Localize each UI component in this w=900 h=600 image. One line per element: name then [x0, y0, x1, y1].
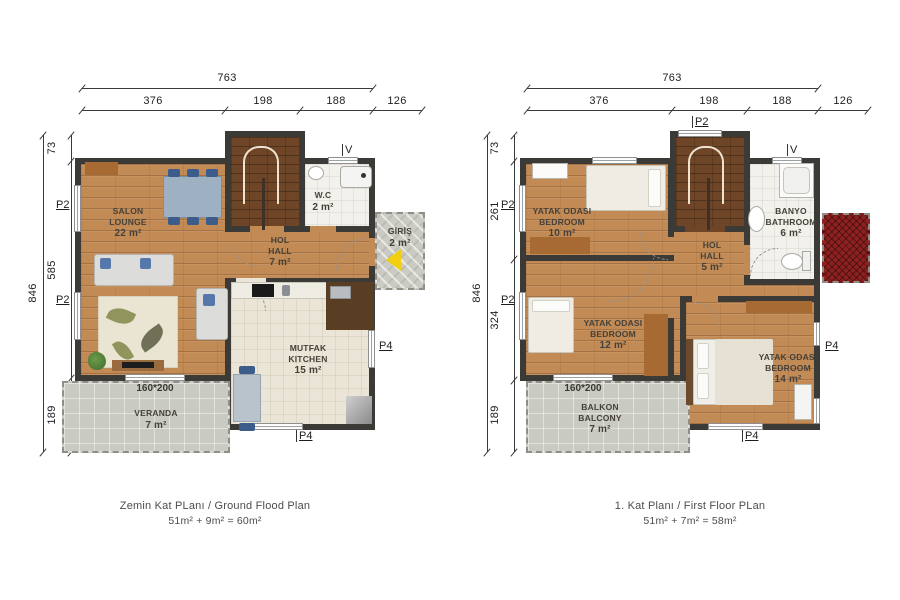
dresser [794, 384, 812, 420]
room-area: 6 m² [756, 228, 826, 241]
room-area: 22 m² [88, 228, 168, 241]
ground-floor-caption: Zemin Kat PLanı / Ground Flood Plan 51m²… [90, 500, 340, 527]
marker-p4: P4 [825, 340, 838, 352]
caption-area-formula: 51m² + 9m² = 60m² [90, 515, 340, 527]
toilet-tank [802, 251, 811, 271]
room-name-en: BEDROOM [750, 363, 826, 374]
rug [98, 296, 178, 368]
sofa-pillow [100, 258, 111, 269]
dim-tick [483, 448, 490, 456]
caption-title: 1. Kat Planı / First Floor PLan [565, 500, 815, 512]
wc-label: W.C 2 m² [300, 190, 346, 214]
dim-segment: 188 [747, 95, 817, 107]
dim-total-width: 763 [647, 72, 697, 84]
dim-tick [510, 448, 517, 456]
dim-total-height: 846 [27, 273, 39, 313]
bedroom3-label: YATAK ODASI BEDROOM 14 m² [750, 352, 826, 387]
window [74, 185, 81, 232]
dim-segment: 376 [564, 95, 634, 107]
room-name-tr: YATAK ODASI [575, 318, 651, 329]
window-size-label: 160*200 [553, 383, 613, 394]
door-opening [310, 226, 336, 232]
dining-chair [168, 217, 180, 225]
window-160x200 [125, 374, 185, 381]
room-area: 2 m² [300, 202, 346, 215]
room-name-tr: GİRİŞ [377, 226, 423, 237]
wc-sink [308, 166, 324, 180]
salon-label: SALON LOUNGE 22 m² [88, 206, 168, 241]
window-160x200 [553, 374, 613, 381]
window [519, 292, 526, 340]
room-name-en: BEDROOM [575, 329, 651, 340]
dim-line-total-v [43, 135, 44, 452]
dining-chair [187, 169, 199, 177]
dim-line-total-v [487, 135, 488, 452]
window [813, 398, 820, 424]
marker-p4: P4 [379, 340, 392, 352]
room-name-en: BALCONY [562, 413, 638, 424]
kitchen-table [233, 374, 261, 422]
room-area: 5 m² [680, 262, 744, 275]
room-name-tr: HOL [680, 240, 744, 251]
room-name-en: BEDROOM [524, 217, 600, 228]
hall-label: HOL HALL 5 m² [680, 240, 744, 275]
caption-title: Zemin Kat PLanı / Ground Flood Plan [90, 500, 340, 512]
kitchen-chair [239, 423, 255, 431]
room-area: 7 m² [245, 257, 315, 270]
kitchen-window [368, 330, 375, 368]
wc-window [328, 157, 358, 164]
dining-chair [206, 217, 218, 225]
window [592, 157, 637, 164]
doormat [346, 396, 372, 424]
dim-segment: 73 [46, 134, 58, 162]
window [813, 322, 820, 346]
giris-label: GİRİŞ 2 m² [377, 226, 423, 250]
pillow [697, 343, 709, 369]
room-name-tr: SALON [88, 206, 168, 217]
entry-door-opening [369, 238, 375, 266]
room-area: 12 m² [575, 340, 651, 353]
entrance-arrow-icon [386, 249, 401, 271]
dim-line-total [527, 88, 818, 89]
dim-segment: 126 [808, 95, 878, 107]
door-opening [744, 245, 750, 275]
toilet [781, 253, 803, 270]
room-name-en: HALL [245, 246, 315, 257]
dim-segment: 73 [489, 134, 501, 162]
room-area: 7 m² [562, 424, 638, 437]
door-opening [250, 226, 284, 232]
desk [532, 163, 568, 179]
plant [88, 352, 106, 370]
balcony-label: BALKON BALCONY 7 m² [562, 402, 638, 437]
dim-segment: 126 [362, 95, 432, 107]
pillow [648, 169, 661, 207]
wardrobe [746, 301, 812, 313]
marker-p2: P2 [501, 294, 514, 306]
marker-p2: P2 [501, 199, 514, 211]
room-area: 15 m² [270, 365, 346, 378]
kitchen-counter [231, 282, 327, 299]
floorplan-canvas: 763 376 198 188 126 846 73 585 189 [0, 0, 900, 600]
dim-total-width: 763 [202, 72, 252, 84]
room-name-tr: BALKON [562, 402, 638, 413]
dim-line-total [82, 88, 373, 89]
room-name-en: LOUNGE [88, 217, 168, 228]
caption-area-formula: 51m² + 7m² = 58m² [565, 515, 815, 527]
room-area: 7 m² [116, 420, 196, 433]
marker-p2: P2 [56, 294, 69, 306]
first-floor-caption: 1. Kat Planı / First Floor PLan 51m² + 7… [565, 500, 815, 527]
marker-p2: P2 [56, 199, 69, 211]
dining-chair [206, 169, 218, 177]
dim-total-height: 846 [471, 273, 483, 313]
bathtub [340, 166, 372, 188]
bathtub-drain [361, 173, 366, 178]
shower-tray [783, 167, 810, 194]
kitchen-label: MUTFAK KITCHEN 15 m² [270, 343, 346, 378]
dim-segment: 376 [118, 95, 188, 107]
marker-p2: P2 [692, 116, 708, 128]
sofa-pillow [140, 258, 151, 269]
marker-v: V [787, 144, 797, 156]
pillow [532, 300, 570, 312]
bathroom-label: BANYO BATHROOM 6 m² [756, 206, 826, 241]
room-name-en: HALL [680, 251, 744, 262]
dim-tick [39, 448, 46, 456]
room-name-tr: YATAK ODASI [524, 206, 600, 217]
hall-label: HOL HALL 7 m² [245, 235, 315, 270]
veranda-label: VERANDA 7 m² [116, 408, 196, 432]
dim-segment: 188 [301, 95, 371, 107]
room-name-en: KITCHEN [270, 354, 346, 365]
bedroom1-label: YATAK ODASI BEDROOM 10 m² [524, 206, 600, 241]
stove [252, 284, 274, 297]
inner-wall [668, 318, 674, 381]
room-name-tr: VERANDA [116, 408, 196, 419]
bed-headboard [686, 339, 693, 405]
stairs-direction-icon [243, 146, 279, 204]
room-name-tr: W.C [300, 190, 346, 201]
kitchen-door [248, 423, 303, 430]
window [708, 423, 763, 430]
kitchen-sink [330, 286, 351, 299]
marker-p4: P4 [742, 430, 758, 442]
room-area: 10 m² [524, 228, 600, 241]
dim-segment: 189 [489, 399, 501, 431]
dining-chair [187, 217, 199, 225]
dim-segment: 261 [489, 195, 501, 227]
room-name-tr: YATAK ODASI [750, 352, 826, 363]
kitchen-chair [239, 366, 255, 374]
room-name-tr: BANYO [756, 206, 826, 217]
bedroom2-label: YATAK ODASI BEDROOM 12 m² [575, 318, 651, 353]
stair-opening [685, 226, 725, 232]
marker-v: V [342, 144, 352, 156]
stairs-direction-icon [688, 146, 724, 204]
stair-window [678, 130, 722, 137]
dim-segment: 198 [228, 95, 298, 107]
window-size-label: 160*200 [125, 383, 185, 394]
entrance-roof [822, 213, 870, 283]
dim-segment: 189 [46, 399, 58, 431]
tv [122, 362, 154, 368]
dining-chair [168, 169, 180, 177]
dining-table [163, 176, 222, 218]
window [74, 292, 81, 340]
room-name-tr: HOL [245, 235, 315, 246]
room-area: 2 m² [377, 238, 423, 251]
room-name-tr: MUTFAK [270, 343, 346, 354]
counter-item [282, 285, 290, 296]
room-name-en: BATHROOM [756, 217, 826, 228]
dim-segment: 198 [674, 95, 744, 107]
room-area: 14 m² [750, 374, 826, 387]
inner-wall [668, 158, 674, 237]
dim-segment: 585 [46, 254, 58, 286]
armchair-pillow [203, 294, 215, 306]
marker-p4: P4 [296, 430, 312, 442]
dim-segment: 324 [489, 304, 501, 336]
pillow [697, 373, 709, 399]
sideboard [85, 162, 118, 175]
